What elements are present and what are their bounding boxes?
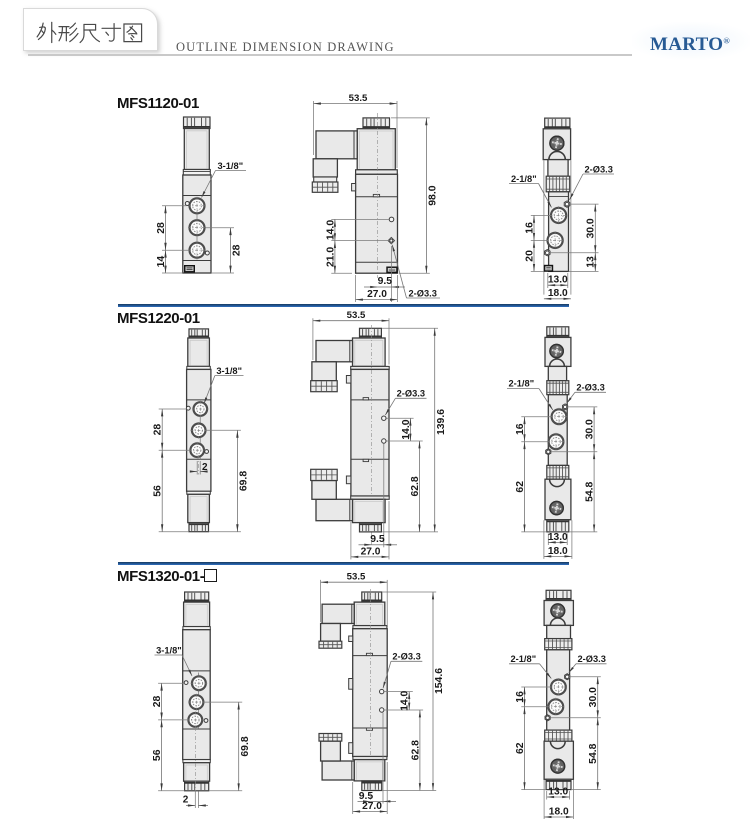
svg-text:13.0: 13.0 — [548, 275, 568, 286]
svg-text:154.6: 154.6 — [434, 668, 445, 694]
svg-text:2-Ø3.3: 2-Ø3.3 — [576, 383, 604, 393]
svg-text:53.5: 53.5 — [349, 93, 368, 104]
svg-text:16: 16 — [515, 691, 526, 703]
svg-text:13.0: 13.0 — [548, 787, 568, 798]
svg-text:16: 16 — [515, 423, 526, 435]
svg-text:28: 28 — [156, 222, 167, 234]
svg-text:2-Ø3.3: 2-Ø3.3 — [409, 289, 437, 299]
svg-text:13.0: 13.0 — [548, 532, 568, 543]
svg-text:18.0: 18.0 — [548, 288, 568, 299]
svg-text:62.8: 62.8 — [410, 740, 421, 760]
svg-text:139.6: 139.6 — [436, 409, 447, 435]
svg-text:28: 28 — [153, 424, 164, 436]
svg-text:18.0: 18.0 — [549, 806, 569, 817]
svg-text:14.0: 14.0 — [401, 419, 412, 439]
svg-text:2-1/8": 2-1/8" — [511, 174, 537, 184]
svg-text:14.0: 14.0 — [325, 220, 336, 240]
svg-text:14: 14 — [156, 256, 167, 268]
svg-text:13: 13 — [586, 256, 597, 268]
svg-text:54.8: 54.8 — [585, 481, 596, 501]
svg-text:16: 16 — [524, 222, 535, 234]
svg-text:56: 56 — [152, 749, 163, 761]
svg-text:18.0: 18.0 — [548, 546, 568, 557]
svg-text:3-1/8": 3-1/8" — [216, 366, 242, 376]
svg-text:27.0: 27.0 — [367, 289, 387, 300]
svg-text:53.5: 53.5 — [347, 310, 366, 321]
svg-text:54.8: 54.8 — [588, 743, 599, 763]
svg-text:98.0: 98.0 — [428, 185, 439, 205]
svg-text:2-Ø3.3: 2-Ø3.3 — [397, 389, 425, 399]
svg-text:3-1/8": 3-1/8" — [156, 645, 182, 655]
svg-text:2-Ø3.3: 2-Ø3.3 — [392, 652, 420, 662]
svg-text:28: 28 — [232, 244, 243, 256]
svg-text:27.0: 27.0 — [361, 546, 381, 557]
svg-text:69.8: 69.8 — [239, 471, 250, 491]
svg-text:69.8: 69.8 — [240, 736, 251, 756]
svg-text:2: 2 — [202, 462, 208, 473]
svg-text:2: 2 — [183, 795, 189, 806]
svg-text:30.0: 30.0 — [586, 218, 597, 238]
svg-text:3-1/8": 3-1/8" — [218, 161, 244, 171]
svg-text:20: 20 — [524, 250, 535, 262]
svg-text:62: 62 — [515, 481, 526, 493]
svg-text:62: 62 — [515, 742, 526, 754]
svg-text:27.0: 27.0 — [362, 801, 382, 812]
svg-text:21.0: 21.0 — [325, 247, 336, 267]
svg-text:2-Ø3.3: 2-Ø3.3 — [585, 165, 613, 175]
svg-text:53.5: 53.5 — [347, 572, 366, 583]
svg-text:2-1/8": 2-1/8" — [509, 379, 535, 389]
svg-text:56: 56 — [153, 485, 164, 497]
svg-text:9.5: 9.5 — [378, 276, 393, 287]
svg-text:30.0: 30.0 — [585, 419, 596, 439]
svg-text:62.8: 62.8 — [410, 476, 421, 496]
svg-text:9.5: 9.5 — [370, 534, 385, 545]
svg-text:14.0: 14.0 — [400, 690, 411, 710]
svg-text:28: 28 — [152, 696, 163, 708]
svg-text:30.0: 30.0 — [588, 687, 599, 707]
svg-text:2-1/8": 2-1/8" — [511, 654, 537, 664]
svg-text:2-Ø3.3: 2-Ø3.3 — [578, 654, 606, 664]
